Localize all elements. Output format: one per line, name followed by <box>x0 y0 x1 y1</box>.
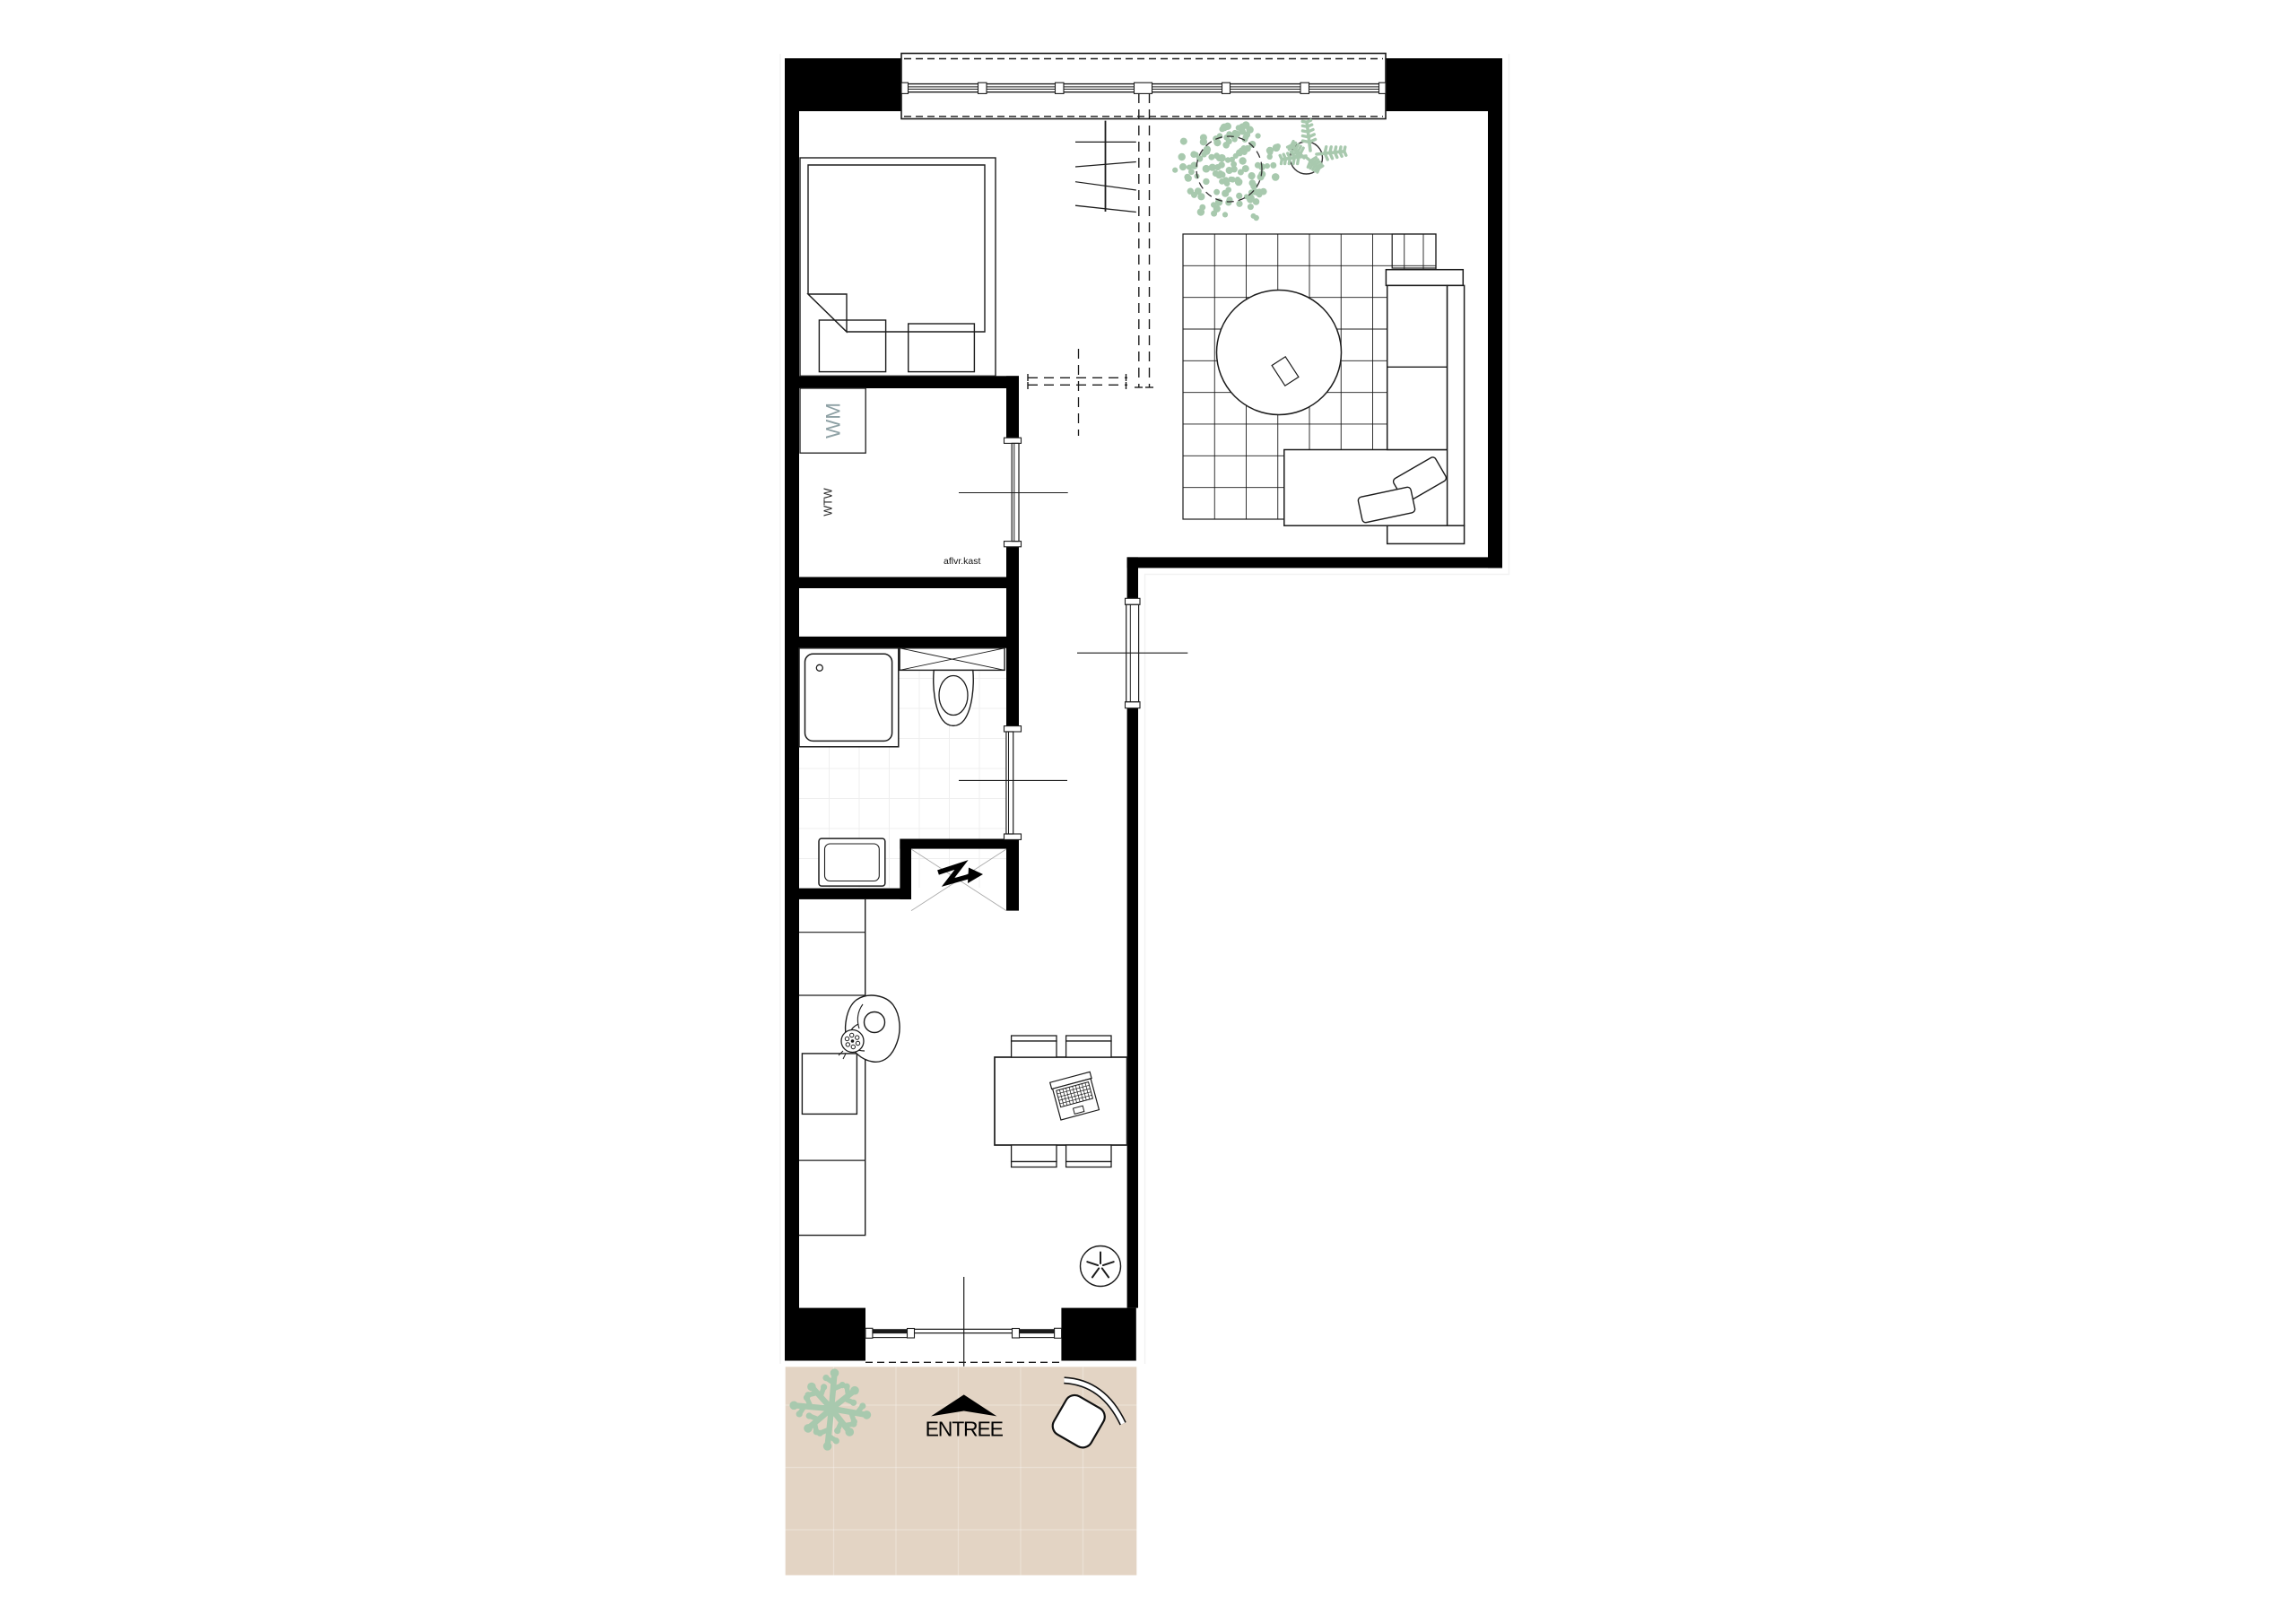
svg-text:ENTREE: ENTREE <box>926 1418 1004 1441</box>
svg-text:WTW: WTW <box>822 488 835 516</box>
svg-text:aflvr.kast: aflvr.kast <box>944 556 981 567</box>
svg-text:WM: WM <box>822 403 845 438</box>
